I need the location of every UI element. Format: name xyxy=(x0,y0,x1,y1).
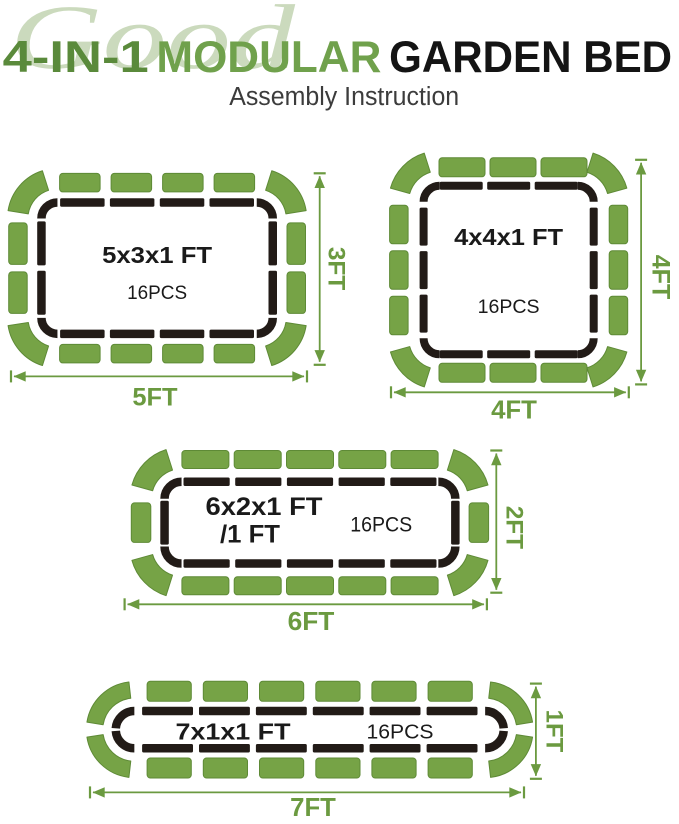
svg-text:16PCS: 16PCS xyxy=(127,283,187,304)
svg-text:5x3x1 FT: 5x3x1 FT xyxy=(102,242,212,268)
svg-text:7x1x1 FT: 7x1x1 FT xyxy=(176,719,291,745)
svg-text:GARDEN BED: GARDEN BED xyxy=(389,33,672,82)
svg-text:1FT: 1FT xyxy=(540,710,567,753)
svg-text:MODULAR: MODULAR xyxy=(156,33,381,82)
svg-text:7FT: 7FT xyxy=(290,794,336,819)
svg-text:16PCS: 16PCS xyxy=(367,722,434,744)
svg-text:6x2x1 FT: 6x2x1 FT xyxy=(206,493,323,521)
svg-text:4FT: 4FT xyxy=(491,396,537,424)
svg-text:16PCS: 16PCS xyxy=(478,297,540,318)
svg-text:/1 FT: /1 FT xyxy=(220,520,280,548)
svg-text:2FT: 2FT xyxy=(500,506,527,549)
svg-text:5FT: 5FT xyxy=(132,384,178,412)
svg-text:4FT: 4FT xyxy=(647,255,675,299)
svg-text:6FT: 6FT xyxy=(288,606,335,636)
svg-text:4-IN-1: 4-IN-1 xyxy=(3,33,149,82)
svg-text:Assembly Instruction: Assembly Instruction xyxy=(229,83,459,111)
svg-text:4x4x1 FT: 4x4x1 FT xyxy=(454,224,563,250)
svg-text:16PCS: 16PCS xyxy=(350,513,412,536)
svg-text:3FT: 3FT xyxy=(322,247,349,291)
